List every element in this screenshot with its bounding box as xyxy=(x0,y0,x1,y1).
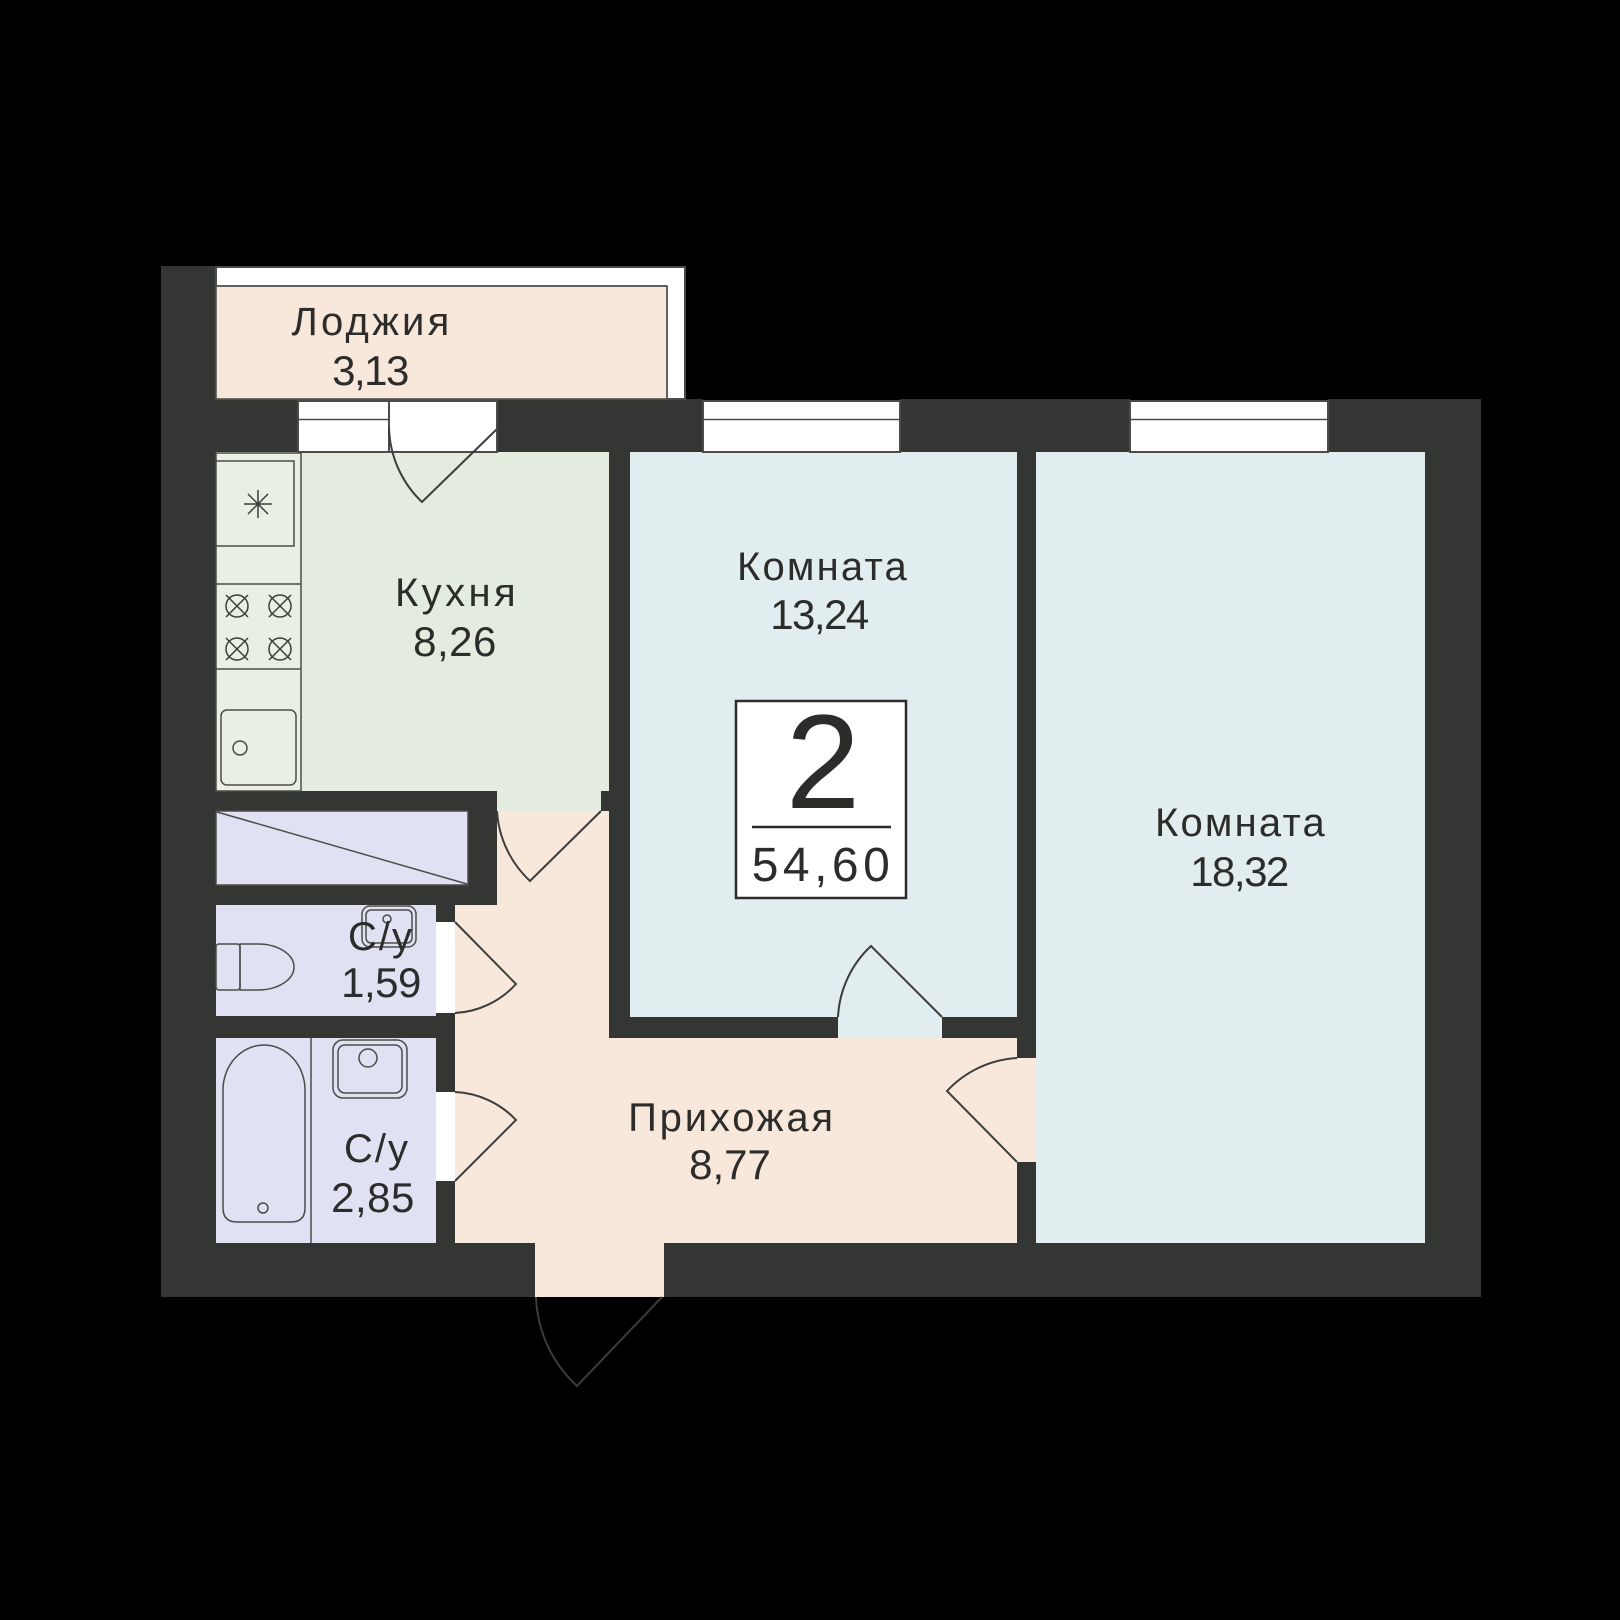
svg-text:С/у: С/у xyxy=(344,1127,410,1171)
svg-text:Комната: Комната xyxy=(1155,801,1327,845)
svg-text:Лоджия: Лоджия xyxy=(292,300,453,344)
svg-text:18,32: 18,32 xyxy=(1190,848,1288,895)
svg-text:С/у: С/у xyxy=(348,915,414,959)
svg-text:2,85: 2,85 xyxy=(331,1174,415,1221)
svg-text:Комната: Комната xyxy=(737,545,909,589)
svg-text:Прихожая: Прихожая xyxy=(628,1096,836,1140)
svg-text:2: 2 xyxy=(786,688,861,837)
svg-text:13,24: 13,24 xyxy=(770,591,869,638)
svg-text:54,60: 54,60 xyxy=(752,839,895,892)
svg-text:Кухня: Кухня xyxy=(395,571,519,615)
svg-text:8,77: 8,77 xyxy=(689,1141,771,1188)
svg-text:8,26: 8,26 xyxy=(413,618,497,665)
svg-text:3,13: 3,13 xyxy=(332,347,408,394)
svg-text:1,59: 1,59 xyxy=(341,959,421,1006)
